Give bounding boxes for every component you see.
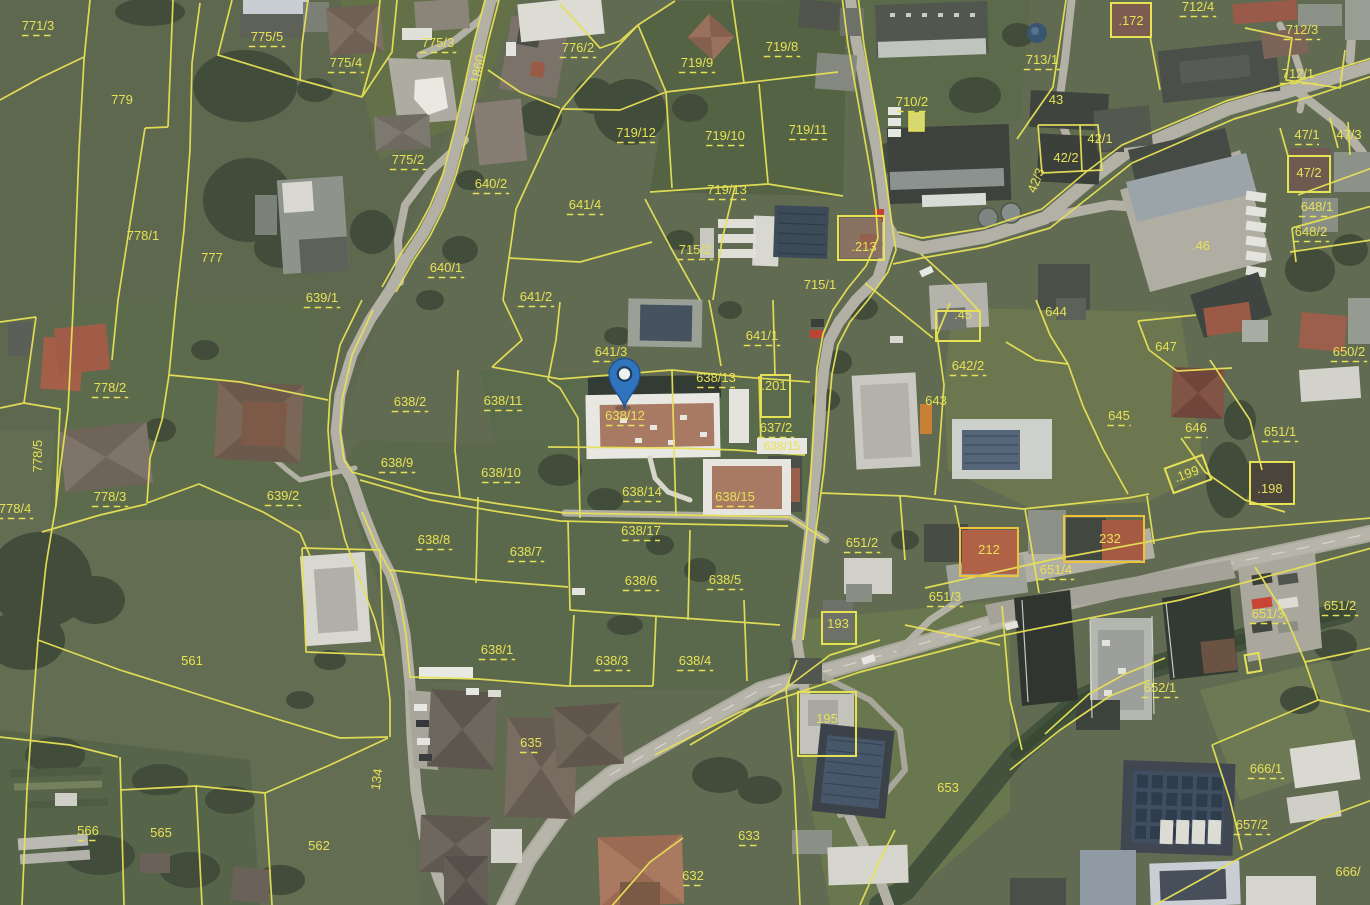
svg-text:648/1: 648/1	[1301, 199, 1334, 214]
svg-text:.198: .198	[1257, 481, 1282, 496]
svg-text:638/4: 638/4	[679, 653, 712, 668]
svg-text:632: 632	[682, 868, 704, 883]
svg-text:657/2: 657/2	[1236, 817, 1269, 832]
svg-text:.45: .45	[954, 307, 972, 322]
svg-text:641/2: 641/2	[520, 289, 553, 304]
svg-text:650/2: 650/2	[1333, 344, 1366, 359]
svg-text:719/9: 719/9	[681, 55, 714, 70]
svg-text:651/3: 651/3	[1252, 606, 1285, 621]
svg-text:43: 43	[1049, 92, 1063, 107]
svg-text:713/1: 713/1	[1026, 52, 1059, 67]
svg-text:651/2: 651/2	[1324, 598, 1357, 613]
svg-text:638/14: 638/14	[622, 484, 662, 499]
svg-text:712/1: 712/1	[1282, 66, 1315, 81]
svg-text:719/11: 719/11	[789, 122, 828, 137]
svg-text:775/2: 775/2	[392, 152, 425, 167]
svg-text:.213: .213	[851, 239, 876, 254]
svg-text:639/1: 639/1	[306, 290, 339, 305]
svg-text:646: 646	[1185, 420, 1207, 435]
svg-text:638/6: 638/6	[625, 573, 658, 588]
svg-text:775/5: 775/5	[251, 29, 284, 44]
svg-text:47/2: 47/2	[1296, 165, 1321, 180]
svg-text:638/7: 638/7	[510, 544, 543, 559]
svg-text:638/17: 638/17	[621, 523, 661, 538]
svg-text:562: 562	[308, 838, 330, 853]
svg-text:193: 193	[827, 616, 849, 631]
svg-text:640/1: 640/1	[430, 260, 463, 275]
svg-text:.46: .46	[1192, 238, 1210, 253]
svg-text:641/3: 641/3	[595, 344, 628, 359]
svg-text:638/5: 638/5	[709, 572, 742, 587]
svg-text:638/2: 638/2	[394, 394, 427, 409]
svg-text:638/15: 638/15	[764, 439, 801, 453]
svg-text:712/4: 712/4	[1182, 0, 1215, 14]
svg-text:651/4: 651/4	[1040, 562, 1073, 577]
svg-text:565: 565	[150, 825, 172, 840]
svg-text:47/3: 47/3	[1336, 127, 1361, 142]
svg-text:561: 561	[181, 653, 203, 668]
svg-text:778/2: 778/2	[94, 380, 127, 395]
svg-text:778/4: 778/4	[0, 501, 31, 516]
svg-text:712/3: 712/3	[1286, 22, 1319, 37]
svg-text:715/1: 715/1	[804, 277, 837, 292]
svg-text:195: 195	[816, 711, 838, 726]
svg-text:719/10: 719/10	[705, 128, 745, 143]
svg-text:641/4: 641/4	[569, 197, 602, 212]
svg-text:639/2: 639/2	[267, 488, 300, 503]
svg-text:638/9: 638/9	[381, 455, 414, 470]
svg-text:652/1: 652/1	[1144, 680, 1177, 695]
svg-text:638/3: 638/3	[596, 653, 629, 668]
svg-text:638/13: 638/13	[696, 370, 736, 385]
svg-text:648/2: 648/2	[1295, 224, 1328, 239]
svg-text:134: 134	[368, 768, 386, 792]
svg-text:642/2: 642/2	[952, 358, 985, 373]
svg-text:641/1: 641/1	[746, 328, 779, 343]
svg-text:719/12: 719/12	[616, 125, 656, 140]
svg-text:42/2: 42/2	[1053, 150, 1078, 165]
svg-text:.201: .201	[761, 378, 786, 393]
svg-text:232: 232	[1099, 531, 1121, 546]
svg-text:645: 645	[1108, 408, 1130, 423]
svg-text:775/3: 775/3	[422, 35, 455, 50]
svg-text:212: 212	[978, 542, 1000, 557]
svg-text:.172: .172	[1118, 13, 1143, 28]
svg-text:666/1: 666/1	[1250, 761, 1283, 776]
svg-text:771/3: 771/3	[22, 18, 55, 33]
svg-text:651/3: 651/3	[929, 589, 962, 604]
svg-text:666/: 666/	[1335, 864, 1361, 879]
svg-text:638/8: 638/8	[418, 532, 451, 547]
svg-text:638/15: 638/15	[715, 489, 755, 504]
svg-text:778/3: 778/3	[94, 489, 127, 504]
svg-text:638/10: 638/10	[481, 465, 521, 480]
svg-text:638/11: 638/11	[484, 393, 523, 408]
svg-text:643: 643	[925, 393, 947, 408]
svg-text:653: 653	[937, 780, 959, 795]
svg-text:778/5: 778/5	[30, 440, 45, 473]
svg-text:651/2: 651/2	[846, 535, 879, 550]
svg-text:644: 644	[1045, 304, 1067, 319]
svg-text:777: 777	[201, 250, 223, 265]
svg-text:776/2: 776/2	[562, 40, 595, 55]
svg-text:640/2: 640/2	[475, 176, 508, 191]
svg-text:710/2: 710/2	[896, 94, 929, 109]
svg-text:647: 647	[1155, 339, 1177, 354]
svg-text:635: 635	[520, 735, 542, 750]
svg-text:637/2: 637/2	[760, 420, 793, 435]
svg-text:566: 566	[77, 823, 99, 838]
svg-text:633: 633	[738, 828, 760, 843]
svg-text:42/1: 42/1	[1087, 131, 1112, 146]
svg-text:47/1: 47/1	[1294, 127, 1319, 142]
svg-text:719/8: 719/8	[766, 39, 799, 54]
svg-text:715/2: 715/2	[679, 242, 712, 257]
svg-text:775/4: 775/4	[330, 55, 363, 70]
svg-text:779: 779	[111, 92, 133, 107]
svg-text:719/13: 719/13	[707, 182, 747, 197]
svg-text:651/1: 651/1	[1264, 424, 1297, 439]
svg-text:638/1: 638/1	[481, 642, 514, 657]
svg-text:778/1: 778/1	[127, 228, 160, 243]
